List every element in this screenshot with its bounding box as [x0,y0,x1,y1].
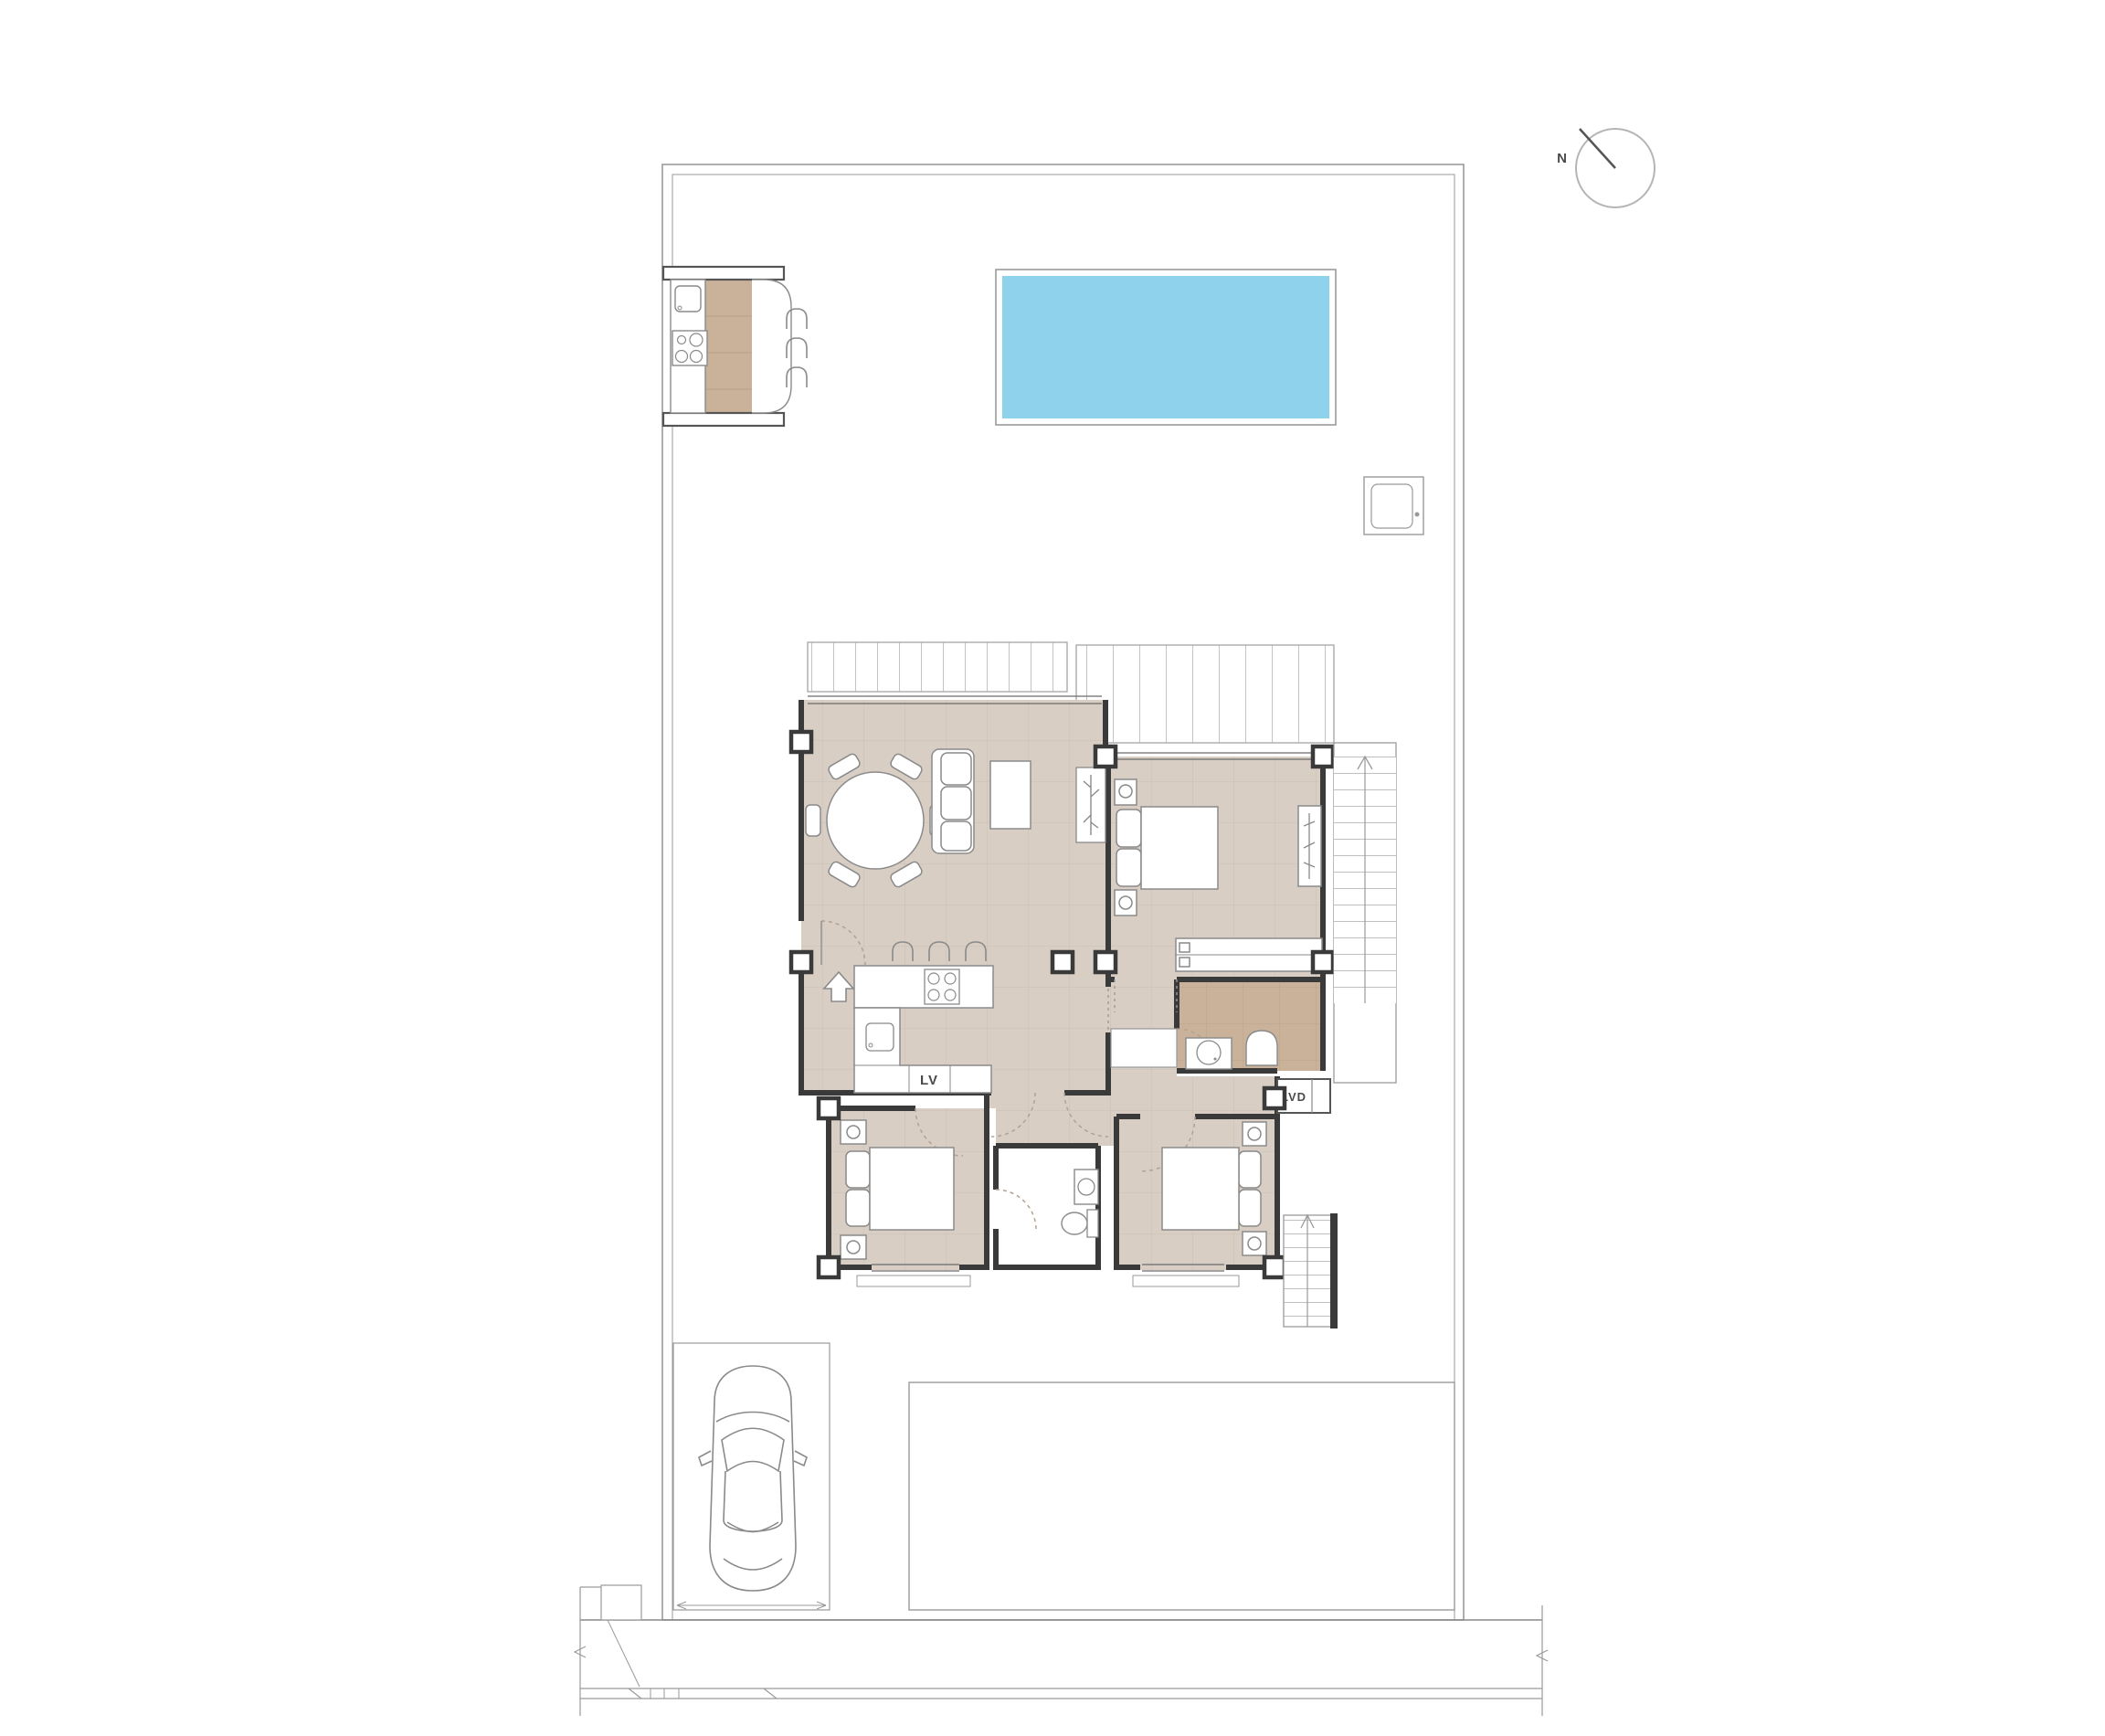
car-icon [699,1366,807,1591]
nightstand [841,1235,866,1259]
swimming-pool [996,270,1336,425]
wardrobe-icon [1298,806,1321,886]
outdoor-sink-icon [675,286,701,312]
coffee-table-icon [990,761,1031,829]
wardrobe-icon [1176,938,1322,971]
shower-icon [1111,1029,1177,1067]
toilet-icon [1246,1031,1277,1065]
patio [909,1382,1454,1610]
floor-plan-canvas: N [0,0,2105,1736]
window-sills [857,1276,1239,1286]
toilet-icon [1062,1210,1098,1237]
console-plant-icon [1076,767,1105,842]
floor-plan-drawing: N [0,0,2105,1736]
nightstand [841,1120,866,1144]
pool-water [1002,276,1329,418]
exterior-stairs-down [1284,1213,1334,1328]
compass-icon: N [1557,129,1655,207]
pergola-left [808,642,1067,692]
pergola-right [1076,645,1334,743]
nightstand [1115,779,1137,805]
north-label: N [1557,151,1568,166]
outdoor-kitchen [663,267,807,426]
cooktop-icon [925,969,959,1004]
dishwasher-label: LV [920,1073,938,1088]
bathroom2-floor [996,1146,1098,1270]
nightstand [1115,890,1137,916]
kitchen-island [854,966,993,1008]
bbq-cooktop-icon [672,331,707,365]
technical-box [1364,477,1423,535]
nightstand [1243,1232,1266,1255]
street-sidewalk [575,1587,1548,1716]
gate [580,1585,641,1687]
exterior-stairs-up [1334,743,1396,1083]
sofa-icon [932,749,974,853]
nightstand [1243,1122,1266,1146]
compass-needle [1580,129,1615,168]
